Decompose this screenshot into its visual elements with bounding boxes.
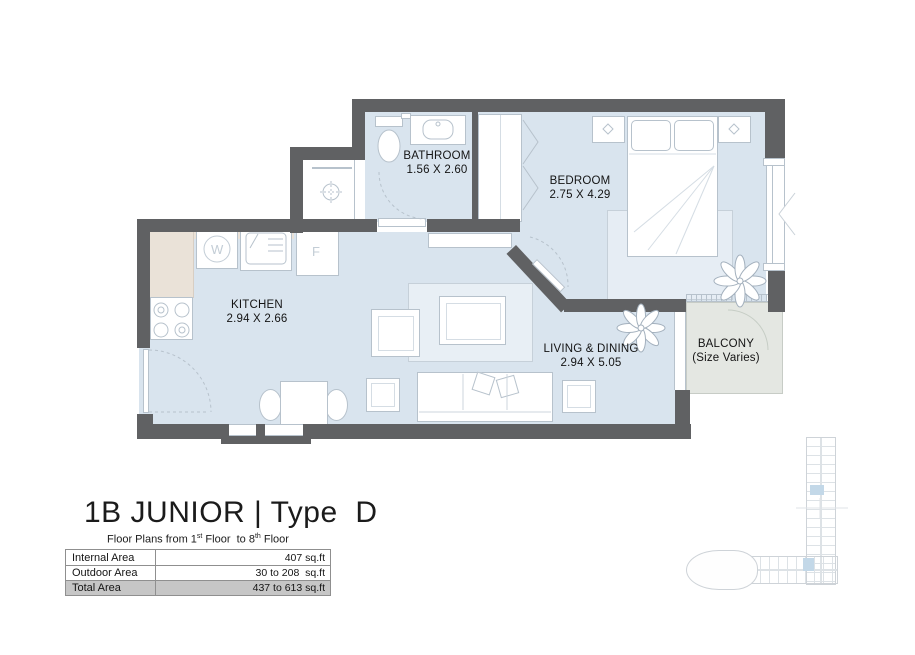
room-label-kitchen: KITCHEN 2.94 X 2.66 (197, 299, 317, 326)
window-jamb-bottom (763, 263, 785, 271)
wall-right-lower (768, 266, 785, 312)
table-row-total: Total Area 437 to 613 sq.ft (66, 580, 330, 595)
wall-living-balcony (564, 299, 686, 312)
kitchen-dims: 2.94 X 2.66 (197, 313, 317, 327)
wall-right-upper (765, 99, 785, 165)
coffee-table-inner (446, 303, 501, 340)
table-row-internal: Internal Area 407 sq.ft (66, 550, 330, 565)
page-title: 1B JUNIOR | Type D (84, 496, 378, 530)
row-value: 30 to 208 sq.ft (156, 567, 330, 579)
row-value: 407 sq.ft (156, 552, 330, 564)
kitchen-sink (240, 227, 292, 271)
row-label: Total Area (66, 581, 156, 595)
nightstand-left (592, 116, 625, 143)
bathroom-door-threshold (378, 218, 426, 227)
bedroom-dims: 2.75 X 4.29 (520, 189, 640, 203)
keyplan (680, 430, 915, 655)
balcony-note: (Size Varies) (666, 352, 786, 366)
wall-interior-kitchen (137, 219, 377, 232)
room-label-balcony: BALCONY (Size Varies) (666, 338, 786, 365)
bed-pillow-left (631, 120, 671, 151)
keyplan-unit-highlight-1 (810, 485, 824, 495)
balcony-name: BALCONY (666, 338, 786, 352)
living-dims: 2.94 X 5.05 (526, 357, 656, 371)
room-label-bathroom: BATHROOM 1.56 X 2.60 (377, 150, 497, 177)
sill-bedroom-balcony (686, 294, 768, 302)
armchair-seat (378, 316, 414, 351)
bathroom-dims: 1.56 X 2.60 (377, 164, 497, 178)
toilet-tank (375, 116, 403, 127)
soap-shelf (401, 113, 411, 119)
subtitle-post: Floor (261, 534, 289, 546)
kitchen-counter-corner (150, 226, 194, 298)
dining-chair-right (325, 389, 348, 421)
subtitle-mid: Floor to (202, 534, 248, 546)
tv-console (428, 233, 512, 248)
wall-left (137, 219, 150, 348)
window-bedroom-east (766, 163, 785, 267)
wall-sofa-corner (675, 390, 690, 435)
window-jamb-top (763, 158, 785, 166)
row-value: 437 to 613 sq.ft (156, 582, 330, 594)
keyplan-pod (686, 550, 758, 590)
keyplan-unit-highlight-2 (803, 558, 814, 571)
stove (150, 297, 193, 340)
side-table-left-inner (371, 383, 395, 407)
vanity-sink (410, 115, 466, 145)
wall-top (352, 99, 785, 112)
living-name: LIVING & DINING (526, 343, 656, 357)
shower-floor (303, 160, 355, 222)
table-row-outdoor: Outdoor Area 30 to 208 sq.ft (66, 565, 330, 580)
floor-plan-page: W F (0, 0, 915, 655)
window-kitchen (229, 424, 303, 436)
row-label: Outdoor Area (66, 566, 156, 580)
row-label: Internal Area (66, 550, 156, 565)
page-subtitle: Floor Plans from 1st Floor to 8th Floor (65, 533, 331, 546)
side-table-right-inner (567, 385, 591, 408)
bedroom-name: BEDROOM (520, 175, 640, 189)
bed-pillow-right (674, 120, 714, 151)
area-table: Internal Area 407 sq.ft Outdoor Area 30 … (65, 549, 331, 596)
fridge-label: F (312, 244, 320, 259)
room-label-living: LIVING & DINING 2.94 X 5.05 (526, 343, 656, 370)
window-bedroom-east-glazing (772, 165, 773, 265)
nightstand-right (718, 116, 751, 143)
washer-label: W (211, 242, 223, 257)
dining-table (280, 381, 328, 428)
wardrobe-divider (500, 115, 501, 221)
dining-chair-left (259, 389, 282, 421)
window-kitchen-mullion (256, 424, 265, 436)
bathroom-name: BATHROOM (377, 150, 497, 164)
window-ledge (221, 437, 311, 444)
kitchen-name: KITCHEN (197, 299, 317, 313)
subtitle-pre: Floor Plans from (107, 534, 191, 546)
room-label-bedroom: BEDROOM 2.75 X 4.29 (520, 175, 640, 202)
entry-door-leaf (143, 349, 149, 413)
